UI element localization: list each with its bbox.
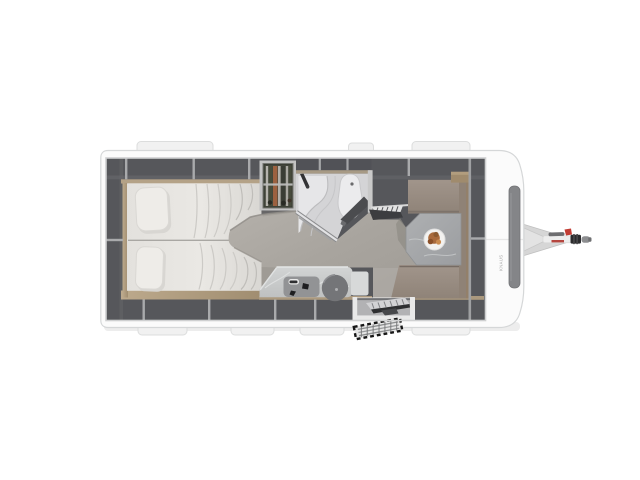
svg-text:KNAUS: KNAUS [499,255,504,271]
